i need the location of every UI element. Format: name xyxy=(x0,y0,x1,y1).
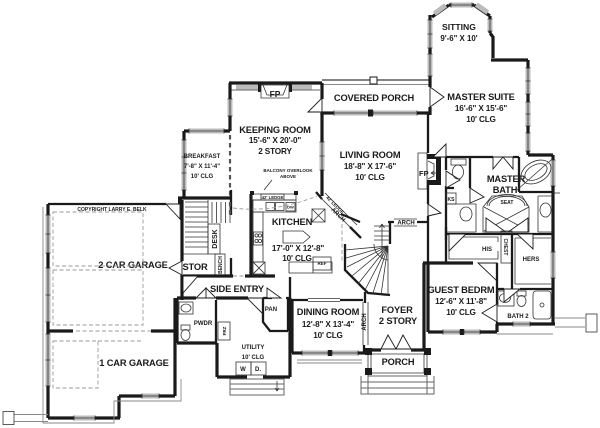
svg-text:BENCH: BENCH xyxy=(218,256,224,274)
svg-text:KS: KS xyxy=(448,197,456,203)
svg-text:SITTING: SITTING xyxy=(442,22,476,32)
svg-text:2 STORY: 2 STORY xyxy=(379,316,418,326)
svg-text:UTILITY: UTILITY xyxy=(242,345,265,351)
svg-text:DINING ROOM: DINING ROOM xyxy=(297,307,360,317)
svg-text:DESK: DESK xyxy=(212,229,219,248)
svg-text:2 STORY: 2 STORY xyxy=(258,147,292,156)
svg-text:10' CLG: 10' CLG xyxy=(191,174,214,180)
svg-text:LIVING ROOM: LIVING ROOM xyxy=(340,150,401,160)
svg-text:ARCH: ARCH xyxy=(362,313,368,330)
svg-text:BATH 2: BATH 2 xyxy=(507,314,529,320)
svg-text:PWDR: PWDR xyxy=(194,321,213,327)
svg-text:10' CLG: 10' CLG xyxy=(446,308,476,317)
svg-text:10' CLG: 10' CLG xyxy=(242,355,265,361)
svg-text:18'-8" X 17'-6": 18'-8" X 17'-6" xyxy=(344,162,396,171)
svg-text:17'-0" X 12'-8": 17'-0" X 12'-8" xyxy=(272,244,324,253)
svg-text:10' CLG: 10' CLG xyxy=(282,254,312,263)
svg-text:12'-6" X 11'-8": 12'-6" X 11'-8" xyxy=(435,297,487,306)
svg-text:FOYER: FOYER xyxy=(381,305,413,315)
svg-text:COPYRIGHT LARRY E. BELK: COPYRIGHT LARRY E. BELK xyxy=(77,207,147,213)
svg-text:CHEST: CHEST xyxy=(502,239,508,256)
svg-text:10' CLG: 10' CLG xyxy=(313,331,343,340)
svg-text:BATH: BATH xyxy=(493,185,518,195)
svg-text:10' CLG: 10' CLG xyxy=(466,115,496,124)
svg-text:16'-6" X 15'-6": 16'-6" X 15'-6" xyxy=(455,104,507,113)
svg-text:PAN: PAN xyxy=(265,307,277,313)
svg-text:FP: FP xyxy=(270,89,281,99)
svg-text:SIDE ENTRY: SIDE ENTRY xyxy=(210,284,265,294)
svg-text:KEEPING ROOM: KEEPING ROOM xyxy=(239,125,311,135)
svg-text:KITCHEN: KITCHEN xyxy=(272,217,313,227)
svg-text:2 CAR GARAGE: 2 CAR GARAGE xyxy=(98,260,167,270)
svg-text:ARCH: ARCH xyxy=(397,221,414,227)
svg-text:HERS: HERS xyxy=(523,257,540,263)
svg-text:BALCONY OVERLOOK: BALCONY OVERLOOK xyxy=(263,168,313,173)
svg-text:GUEST BEDRM: GUEST BEDRM xyxy=(427,285,494,295)
svg-text:REF: REF xyxy=(318,261,327,266)
svg-text:BREAKFAST: BREAKFAST xyxy=(184,154,221,160)
svg-text:FRZ: FRZ xyxy=(222,326,227,335)
svg-text:7'-8" X 11'-4": 7'-8" X 11'-4" xyxy=(184,164,220,170)
svg-text:STOR: STOR xyxy=(182,262,207,272)
svg-text:D.: D. xyxy=(255,367,261,373)
svg-text:W: W xyxy=(240,367,246,373)
svg-text:9'-6" X 10': 9'-6" X 10' xyxy=(440,34,477,43)
svg-text:MASTER SUITE: MASTER SUITE xyxy=(447,92,514,102)
svg-text:42' LEDGE: 42' LEDGE xyxy=(262,195,284,200)
svg-text:SEAT: SEAT xyxy=(501,200,514,206)
svg-text:12'-8" X 13'-4": 12'-8" X 13'-4" xyxy=(302,320,354,329)
svg-text:PORCH: PORCH xyxy=(382,357,415,367)
svg-text:HIS: HIS xyxy=(482,247,492,253)
svg-text:FP: FP xyxy=(419,169,429,178)
svg-text:ABOVE: ABOVE xyxy=(280,174,296,179)
svg-text:1 CAR GARAGE: 1 CAR GARAGE xyxy=(99,358,168,368)
svg-text:10' CLG: 10' CLG xyxy=(355,173,385,182)
svg-text:COVERED PORCH: COVERED PORCH xyxy=(334,93,415,103)
svg-text:15'-6" X 20'-0": 15'-6" X 20'-0" xyxy=(249,136,301,145)
